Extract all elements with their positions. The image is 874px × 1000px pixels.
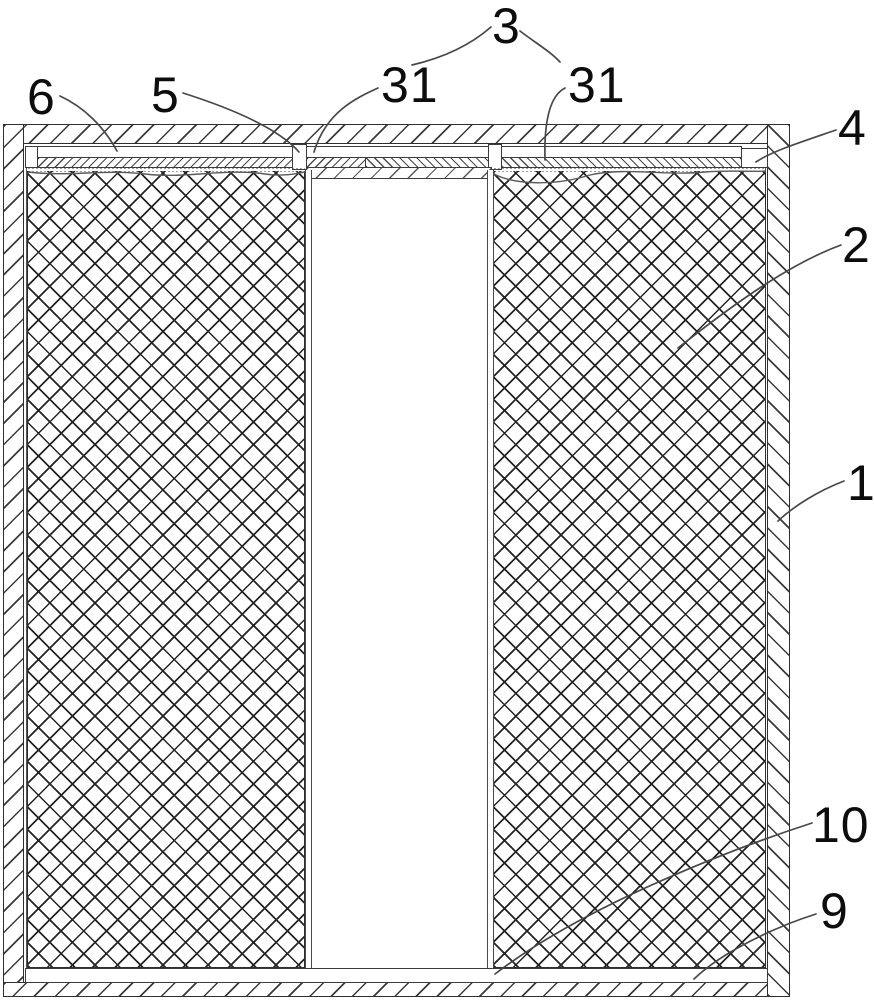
leader-3-to-31-right — [520, 31, 560, 62]
duct-wall-right — [487, 170, 494, 981]
duct-wall-left — [305, 170, 312, 981]
shell-bottom-wall — [3, 982, 768, 997]
ref-label-2: 2 — [842, 220, 871, 270]
ref-label-5: 5 — [151, 70, 180, 120]
duct-interior — [311, 179, 487, 968]
granular-boundary-left — [27, 167, 305, 173]
duct-top-cap — [306, 167, 492, 179]
strip-end-bracket-left — [25, 146, 38, 168]
ref-label-6: 6 — [27, 72, 56, 122]
strip-end-bracket-right — [741, 148, 768, 168]
ref-label-3: 3 — [492, 1, 521, 51]
ref-label-9: 9 — [820, 886, 849, 936]
ref-label-31-right: 31 — [568, 60, 626, 110]
granular-boundary-right — [493, 167, 766, 173]
shell-top-wall — [3, 124, 768, 144]
insulation-left — [27, 171, 305, 968]
figure-canvas: 3 31 31 6 5 4 2 1 10 9 — [0, 0, 874, 1000]
ref-label-31-left: 31 — [381, 60, 439, 110]
ref-label-4: 4 — [838, 103, 867, 153]
ref-label-1: 1 — [847, 458, 874, 508]
insulation-right — [493, 171, 766, 968]
shell-right-wall — [767, 124, 790, 997]
bottom-base-strip — [25, 968, 768, 983]
ref-label-10: 10 — [812, 800, 870, 850]
shell-left-wall — [3, 124, 24, 997]
